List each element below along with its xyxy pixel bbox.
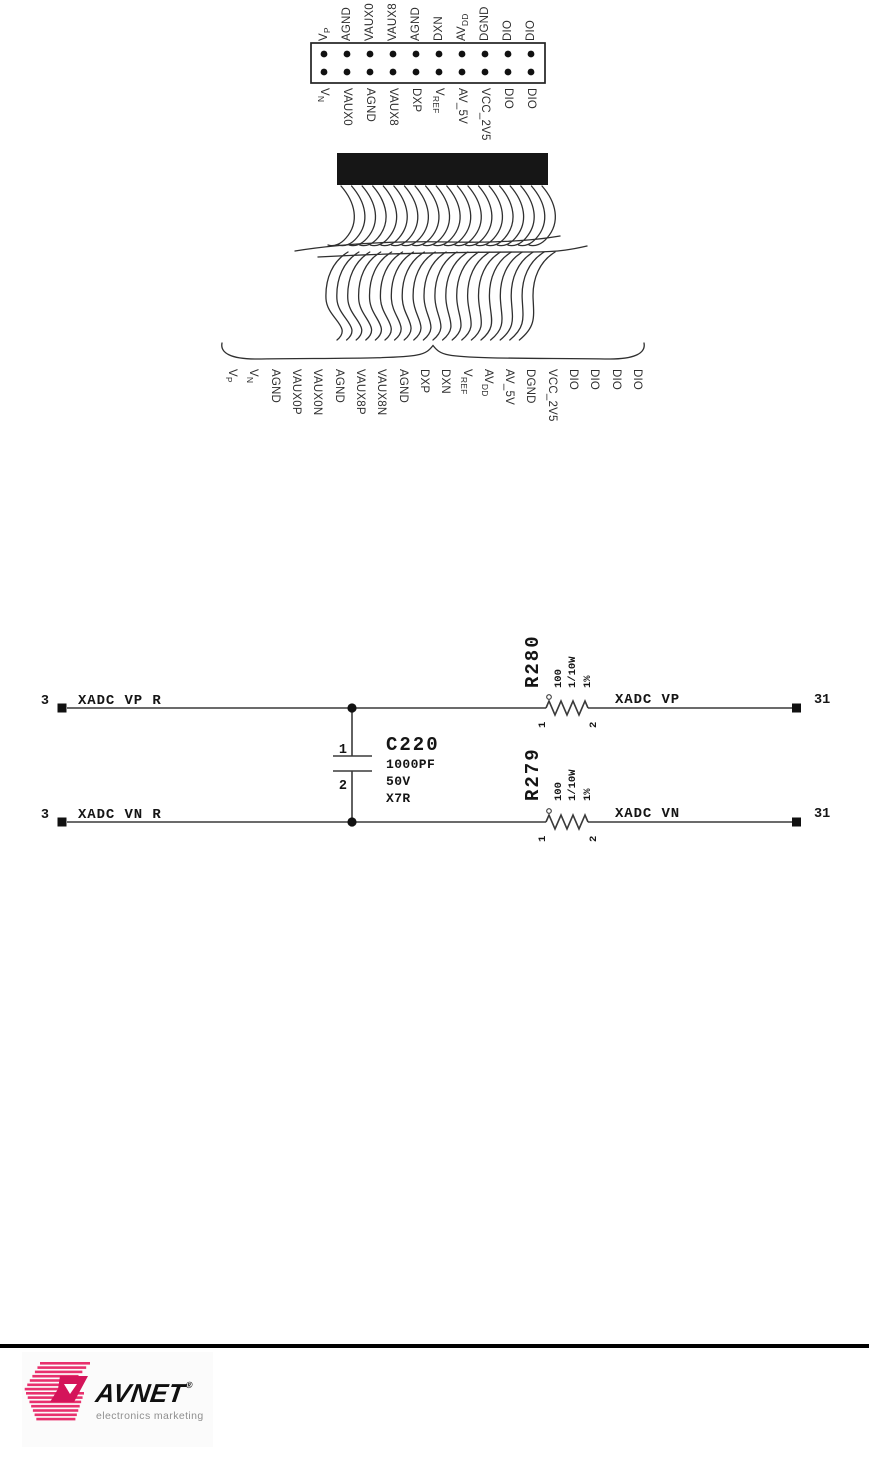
cable-wire-upper [508,186,534,246]
pin-label: DIO [587,369,601,390]
pin-label-text: AGND [397,369,409,403]
r279-pin2: 2 [588,836,600,842]
pin-label: DIO [609,369,623,390]
pin-dot [482,51,489,58]
pin-dot [482,69,489,76]
pin-dot [344,51,351,58]
footer-divider [0,1344,869,1348]
cap-pin1: 1 [339,743,347,758]
cable-wire-upper [360,186,386,246]
r280-tolerance: 1% [582,675,594,688]
brand-text: AVNET [94,1378,187,1408]
pin-number: 3 [41,808,49,823]
pin-dot [505,51,512,58]
logo-stripe [35,1371,82,1374]
net-label: XADC VN R [78,807,162,823]
pin-label: VCC_2V5 [478,88,492,141]
pin-label-text: VAUX8P [354,369,366,415]
pin-label: VN [246,369,260,383]
pin-label: AGND [396,369,410,403]
pin-label-text: DXP [418,369,430,393]
cable-wire-upper [349,186,375,246]
header-connector-outline [311,43,545,83]
pin-number: 3 [41,694,49,709]
pin-dot [390,69,397,76]
cable-wire-lower [500,252,533,340]
pin-label-text: DIO [631,369,643,390]
logo-stripe [33,1409,78,1412]
cable-wire-upper [529,186,555,246]
pin-label: AGND [332,369,346,403]
junction-dot-vn [347,817,356,826]
pad-right-bottom [792,818,801,827]
pin-number: 31 [814,807,830,822]
pin-label: DIO [524,88,538,109]
document-page: VPAGNDVAUX0VAUX8AGNDDXNAVDDDGNDDIODIO VN… [0,0,869,1467]
pin-dot [413,69,420,76]
pin-dot [459,51,466,58]
logo-stripe [36,1418,75,1421]
pin-dot [367,69,374,76]
cable-wire-upper [381,186,407,246]
cap-refdes: C220 [386,734,440,756]
pin-dot [528,69,535,76]
r280-refdes: R280 [522,634,544,688]
pin-label: DIO [501,20,515,41]
cable-wire-upper [476,186,502,246]
pin-label: DIO [566,369,580,390]
pin-dot [413,51,420,58]
r279-value: 100 [553,782,565,801]
pin-label-text: V [247,369,259,377]
r279-tolerance: 1% [582,788,594,801]
pin-label-text: DIO [525,88,537,109]
logo-stripe [40,1362,90,1365]
pin-label: AGND [268,369,282,403]
pin-label: AVDD [481,369,495,397]
cable-wire-upper [434,186,460,246]
pin-label-text: DGND [479,6,491,41]
pin-label: VCC_2V5 [545,369,559,422]
cable-wire-upper [402,186,428,246]
r280-pin2: 2 [588,722,600,728]
resistor-r279-symbol [546,815,588,829]
pin-label-text: VCC_2V5 [479,88,491,141]
pin-label: VAUX0 [340,88,354,126]
cable-wire-upper [423,186,449,246]
r279-power: 1/10W [567,769,579,801]
r280-power: 1/10W [567,656,579,688]
pin-dot [390,51,397,58]
r280-pin1-mark [547,695,552,700]
pin-label: DXP [417,369,431,393]
pin-label-text: AV_5V [503,369,515,405]
pin-label-text: DXN [439,369,451,394]
pin-dot [505,69,512,76]
pin-label-text: VAUX8N [375,369,387,415]
cable-wire-lower [519,252,555,340]
pin-label-text: AV [456,26,468,41]
pin-label-text: AGND [410,7,422,41]
pin-label-text: DXN [433,16,445,41]
cable-wire-lower [443,252,468,340]
ribbon-cable-wires [326,186,555,340]
xadc-filter-schematic: 3 3 31 31 XADC VP R XADC VP XADC VN R XA… [0,600,869,860]
pin-label: DGND [523,369,537,404]
pin-label-text: DIO [610,369,622,390]
avnet-logo-mark [24,1362,94,1426]
pin-label: AGND [409,7,423,41]
pin-label-subscript: DD [480,384,490,397]
cable-wire-upper [328,186,354,246]
pin-dot [436,69,443,76]
cable-wire-upper [391,186,417,246]
cable-wire-upper [497,186,523,246]
pin-label-subscript: P [322,27,332,33]
breakout-brace [222,343,644,359]
pin-label-subscript: REF [431,96,441,114]
pin-label-subscript: N [316,96,326,102]
cap-voltage: 50V [386,774,411,789]
cap-value: 1000PF [386,757,435,772]
pin-label: VREF [460,369,474,394]
pin-label: VREF [432,88,446,113]
pin-label-text: VCC_2V5 [546,369,558,422]
pin-label-subscript: P [224,377,234,383]
net-label: XADC VN [615,806,680,822]
pin-label-text: AV [482,369,494,384]
net-label: XADC VP [615,692,680,708]
pin-label-text: AGND [269,369,281,403]
logo-stripe [37,1366,86,1369]
resistor-r280-symbol [546,701,588,715]
pin-label-text: VAUX0 [364,3,376,41]
avnet-logo: AVNET® electronics marketing [22,1352,213,1447]
ribbon-connector-body [337,153,548,185]
cable-wire-upper [487,186,513,246]
pin-label: AV_5V [502,369,516,405]
logo-stripe [31,1405,80,1408]
pin-dot [528,51,535,58]
cap-dielectric: X7R [386,791,411,806]
cable-wire-upper [455,186,481,246]
cable-wire-upper [339,186,365,246]
cable-wire-lower [452,252,479,340]
r280-value: 100 [553,669,565,688]
pin-label-text: DGND [524,369,536,404]
pin-label: VAUX0N [310,369,324,415]
pin-label-text: AGND [341,7,353,41]
pin-label: DXP [409,88,423,112]
cable-wire-lower [491,252,523,340]
pin-label-text: DIO [525,20,537,41]
pin-dot [367,51,374,58]
pin-label-text: DXP [410,88,422,112]
header-pin-dots [321,51,535,76]
pin-label: VAUX8 [386,88,400,126]
pin-label: DIO [524,20,538,41]
pin-label-text: AGND [333,369,345,403]
pin-label: VAUX0P [289,369,303,415]
cable-wire-upper [370,186,396,246]
r279-pin1-mark [547,809,552,814]
pin-label-text: VAUX0N [311,369,323,415]
pin-label: DGND [478,6,492,41]
cable-wire-lower [462,252,490,340]
pin-label: VAUX8 [386,3,400,41]
registered-mark: ® [185,1380,194,1390]
cable-wire-upper [413,186,439,246]
pin-label: DXN [432,16,446,41]
r279-pin1: 1 [537,836,549,842]
cap-pin2: 2 [339,779,347,794]
pin-label: AV_5V [455,88,469,124]
pin-label-text: DIO [502,20,514,41]
avnet-tagline: electronics marketing [96,1410,204,1422]
pin-label-text: AV_5V [456,88,468,124]
cable-wire-lower [481,252,512,340]
pin-label: VAUX8N [374,369,388,415]
pin-label-text: VAUX0 [341,88,353,126]
cable-wire-lower [510,252,544,340]
pin-label: AGND [340,7,354,41]
pin-label: VAUX0 [363,3,377,41]
pin-label-text: DIO [588,369,600,390]
xadc-header-figure [0,0,869,470]
pad-right-top [792,704,801,713]
pin-label: AVDD [455,13,469,41]
cable-wire-upper [518,186,544,246]
junction-dot-vp [347,703,356,712]
pin-label-text: DIO [567,369,579,390]
r279-refdes: R279 [522,747,544,801]
logo-stripe [35,1414,77,1417]
cable-wire-upper [444,186,470,246]
avnet-wordmark: AVNET® [94,1378,194,1409]
pin-label-text: VAUX8 [387,3,399,41]
pin-label-text: V [461,369,473,377]
pin-label: VP [317,27,331,41]
pin-label: DIO [501,88,515,109]
cable-wire-upper [466,186,492,246]
pin-label: AGND [363,88,377,122]
pin-dot [344,69,351,76]
pin-label-text: AGND [364,88,376,122]
pin-label-text: DIO [502,88,514,109]
pin-label-text: V [433,88,445,96]
pin-dot [459,69,466,76]
pad-left-top [58,704,67,713]
pin-label-text: V [318,33,330,41]
pin-number: 31 [814,693,830,708]
pin-label-subscript: N [245,377,255,383]
pin-label-text: VAUX0P [290,369,302,415]
pin-label-text: V [226,369,238,377]
pin-label-subscript: REF [459,377,469,395]
pin-label: DIO [630,369,644,390]
pin-dot [436,51,443,58]
pin-label-text: V [318,88,330,96]
pin-label-subscript: DD [460,13,470,26]
pin-label: VAUX8P [353,369,367,415]
pin-dot [321,69,328,76]
pin-label: VN [317,88,331,102]
net-label: XADC VP R [78,693,162,709]
pin-label: VP [225,369,239,383]
pin-label: DXN [438,369,452,394]
pin-dot [321,51,328,58]
r280-pin1: 1 [537,722,549,728]
pin-label-text: VAUX8 [387,88,399,126]
pad-left-bottom [58,818,67,827]
